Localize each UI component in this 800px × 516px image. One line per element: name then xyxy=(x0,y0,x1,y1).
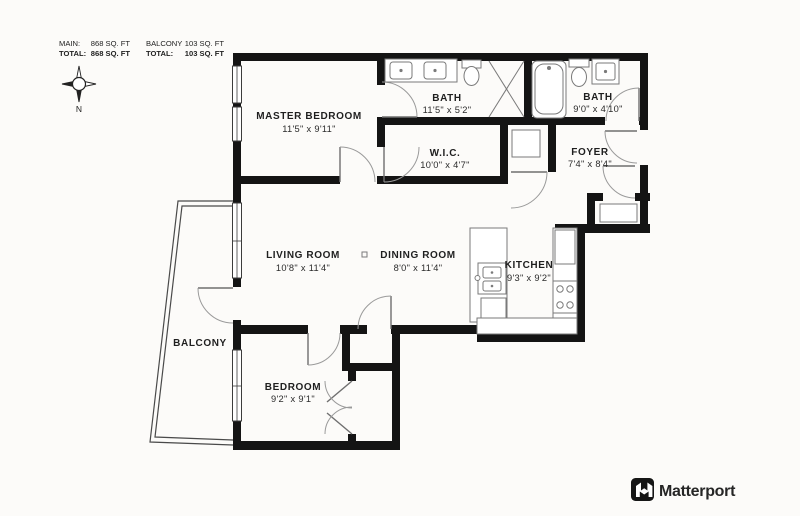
bedroom-closet-doors xyxy=(325,381,352,434)
area-main-label: MAIN: xyxy=(59,39,80,48)
matterport-logo-text: Matterport xyxy=(659,483,736,500)
fridge-icon xyxy=(555,230,575,264)
living-room-label: LIVING ROOM xyxy=(266,250,340,261)
room-master-bedroom: MASTER BEDROOM 11'5" x 9'11" xyxy=(256,111,362,134)
kitchen-dims: 9'3" x 9'2" xyxy=(507,273,551,283)
living-room-dims: 10'8" x 11'4" xyxy=(276,263,330,273)
foyer-closet-shelf xyxy=(600,204,637,222)
stove-icon xyxy=(553,281,577,313)
area-balcony-label: BALCONY xyxy=(146,39,182,48)
dining-room-dims: 8'0" x 11'4" xyxy=(394,263,443,273)
bedroom-door xyxy=(308,333,340,365)
compass-circle xyxy=(73,78,86,91)
ceiling-fixture-icon xyxy=(362,252,367,257)
master-bedroom-dims: 11'5" x 9'11" xyxy=(282,124,336,134)
room-dining: DINING ROOM 8'0" x 11'4" xyxy=(380,250,456,273)
kitchen-label: KITCHEN xyxy=(505,260,554,271)
master-bedroom-label: MASTER BEDROOM xyxy=(256,111,362,122)
balcony-label: BALCONY xyxy=(173,338,227,349)
dishwasher-icon xyxy=(481,298,506,320)
windows xyxy=(233,66,242,421)
compass-rose: N xyxy=(62,66,96,114)
toilet-icon xyxy=(462,60,481,86)
dining-room-label: DINING ROOM xyxy=(380,250,456,261)
room-bath-second: BATH 9'0" x 4'10" xyxy=(573,92,622,114)
hall-closet-shelf xyxy=(512,130,540,157)
toilet-icon xyxy=(569,59,589,87)
room-foyer: FOYER 7'4" x 8'4" xyxy=(568,147,612,169)
area-total-main-value: 868 SQ. FT xyxy=(91,49,131,58)
sink-vanity-icon xyxy=(592,59,619,84)
double-vanity-icon xyxy=(385,59,457,82)
room-wic: W.I.C. 10'0" x 4'7" xyxy=(420,148,469,170)
matterport-logo: Matterport xyxy=(631,478,736,501)
area-total-balcony-label: TOTAL: xyxy=(146,49,173,58)
window xyxy=(233,203,242,278)
window xyxy=(233,107,242,141)
area-balcony-value: 103 SQ. FT xyxy=(185,39,225,48)
balcony-door xyxy=(198,288,233,323)
bath-main-dims: 11'5" x 5'2" xyxy=(423,105,472,115)
area-summary-table: MAIN: 868 SQ. FT BALCONY 103 SQ. FT TOTA… xyxy=(59,39,224,58)
faucet-icon xyxy=(475,276,480,281)
shower-icon xyxy=(489,61,524,117)
floor-plan-sheet: MAIN: 868 SQ. FT BALCONY 103 SQ. FT TOTA… xyxy=(0,0,800,516)
kitchen-counter-bottom xyxy=(477,318,577,334)
bath-main-label: BATH xyxy=(432,93,461,104)
foyer-dims: 7'4" x 8'4" xyxy=(568,159,612,169)
balcony-outline xyxy=(150,201,233,445)
bath-second-label: BATH xyxy=(583,92,612,103)
area-total-main-label: TOTAL: xyxy=(59,49,86,58)
room-bath-main: BATH 11'5" x 5'2" xyxy=(423,93,472,115)
floor-plan-canvas: MAIN: 868 SQ. FT BALCONY 103 SQ. FT TOTA… xyxy=(0,0,800,516)
wic-dims: 10'0" x 4'7" xyxy=(420,160,469,170)
bedroom-label: BEDROOM xyxy=(265,382,321,393)
area-main-value: 868 SQ. FT xyxy=(91,39,131,48)
bathtub-icon xyxy=(532,61,566,118)
master-bath-door xyxy=(382,82,417,117)
window xyxy=(233,350,242,421)
room-balcony: BALCONY xyxy=(173,338,227,349)
room-bedroom: BEDROOM 9'2" x 9'1" xyxy=(265,382,321,404)
room-kitchen: KITCHEN 9'3" x 9'2" xyxy=(505,260,554,283)
bedroom-dims: 9'2" x 9'1" xyxy=(271,394,315,404)
window xyxy=(233,66,242,103)
kitchen-counter-right xyxy=(553,228,577,318)
foyer-label: FOYER xyxy=(571,147,609,158)
compass-north-label: N xyxy=(76,104,82,114)
room-living: LIVING ROOM 10'8" x 11'4" xyxy=(266,250,340,273)
area-total-balcony-value: 103 SQ. FT xyxy=(185,49,225,58)
kitchen-peninsula xyxy=(470,228,507,322)
bath-second-dims: 9'0" x 4'10" xyxy=(573,104,622,114)
hall-closet-door xyxy=(511,172,547,208)
wic-label: W.I.C. xyxy=(430,148,461,159)
